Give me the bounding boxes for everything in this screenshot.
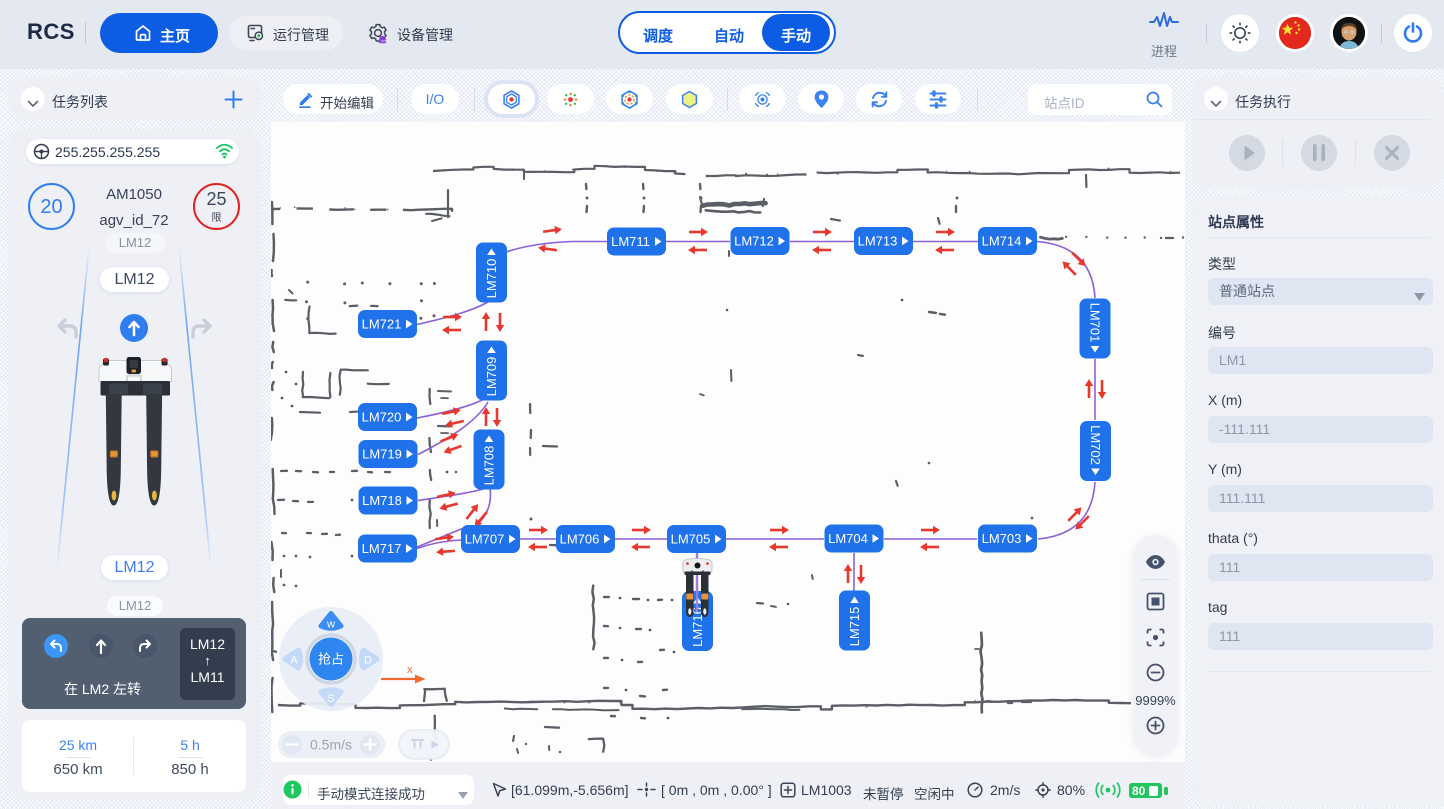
svg-text:LM711: LM711	[611, 234, 650, 249]
svg-text:抢占: 抢占	[318, 652, 344, 667]
svg-text:LM715: LM715	[847, 607, 862, 647]
svg-text:A: A	[290, 655, 298, 667]
svg-text:LM720: LM720	[362, 410, 402, 425]
svg-text:LM717: LM717	[362, 541, 402, 556]
svg-text:x: x	[407, 664, 413, 676]
svg-text:S: S	[327, 693, 334, 705]
svg-text:LM718: LM718	[362, 493, 402, 508]
svg-text:w: w	[326, 619, 335, 631]
svg-text:LM721: LM721	[362, 317, 402, 332]
svg-text:LM712: LM712	[734, 234, 774, 249]
svg-text:LM714: LM714	[982, 234, 1022, 249]
svg-text:0.5m/s: 0.5m/s	[310, 737, 352, 753]
svg-text:LM707: LM707	[465, 532, 505, 547]
svg-text:LM701: LM701	[1088, 303, 1103, 343]
svg-text:LM719: LM719	[362, 447, 402, 462]
svg-text:LM703: LM703	[982, 531, 1022, 546]
svg-text:LM710: LM710	[484, 259, 499, 299]
svg-text:LM708: LM708	[482, 446, 497, 486]
svg-text:LM704: LM704	[828, 531, 868, 546]
svg-text:D: D	[364, 655, 372, 667]
svg-text:LM706: LM706	[560, 532, 600, 547]
svg-text:LM702: LM702	[1088, 425, 1103, 465]
svg-text:LM705: LM705	[671, 532, 711, 547]
svg-text:LM713: LM713	[858, 234, 898, 249]
svg-text:LM709: LM709	[484, 357, 499, 397]
